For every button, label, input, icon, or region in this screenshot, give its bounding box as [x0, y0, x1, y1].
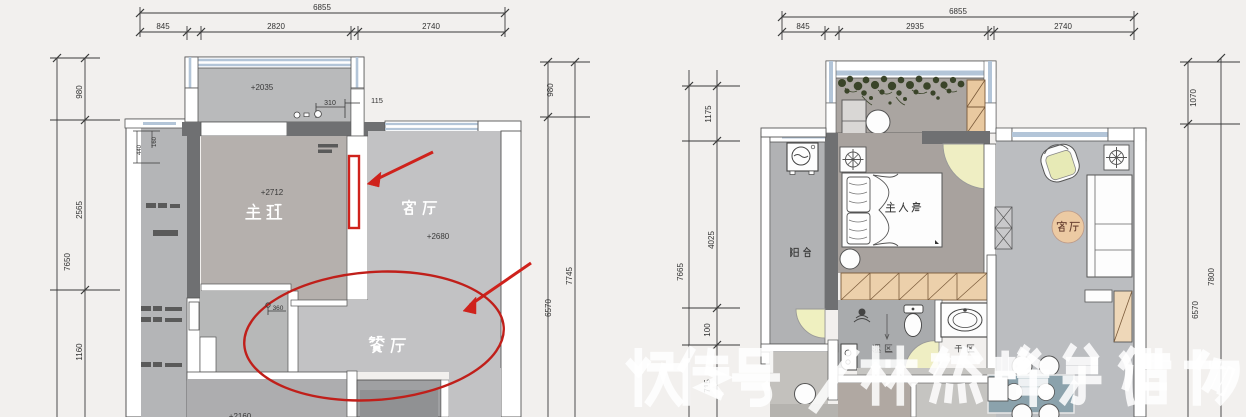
svg-text:6855: 6855 — [949, 7, 967, 16]
svg-text:7665: 7665 — [676, 263, 685, 281]
svg-text:100: 100 — [703, 323, 712, 337]
svg-text:845: 845 — [796, 22, 810, 31]
svg-text:310: 310 — [324, 100, 336, 107]
svg-text:1175: 1175 — [704, 105, 713, 123]
svg-text:845: 845 — [156, 22, 170, 31]
svg-text:+2712: +2712 — [261, 188, 284, 197]
svg-text:4025: 4025 — [707, 231, 716, 249]
svg-text:6855: 6855 — [313, 3, 331, 12]
svg-text:980: 980 — [546, 83, 555, 97]
svg-text:+2680: +2680 — [427, 232, 450, 241]
svg-text:2820: 2820 — [267, 22, 285, 31]
svg-text:7745: 7745 — [565, 267, 574, 285]
svg-text:440: 440 — [137, 144, 143, 155]
svg-text:2740: 2740 — [1054, 22, 1072, 31]
svg-text:6570: 6570 — [1191, 301, 1200, 319]
svg-text:6570: 6570 — [544, 299, 553, 317]
svg-text:1070: 1070 — [1189, 89, 1198, 107]
svg-text:2935: 2935 — [906, 22, 924, 31]
svg-text:980: 980 — [75, 85, 84, 99]
svg-text:1160: 1160 — [75, 343, 84, 361]
svg-text:2740: 2740 — [422, 22, 440, 31]
svg-text:+2160: +2160 — [229, 412, 252, 417]
svg-text:160: 160 — [152, 136, 158, 147]
svg-text:7650: 7650 — [63, 253, 72, 271]
svg-text:115: 115 — [371, 96, 383, 105]
svg-text:2565: 2565 — [75, 201, 84, 219]
svg-text:+2035: +2035 — [251, 83, 274, 92]
svg-text:360: 360 — [273, 305, 284, 312]
svg-text:7800: 7800 — [1207, 268, 1216, 286]
